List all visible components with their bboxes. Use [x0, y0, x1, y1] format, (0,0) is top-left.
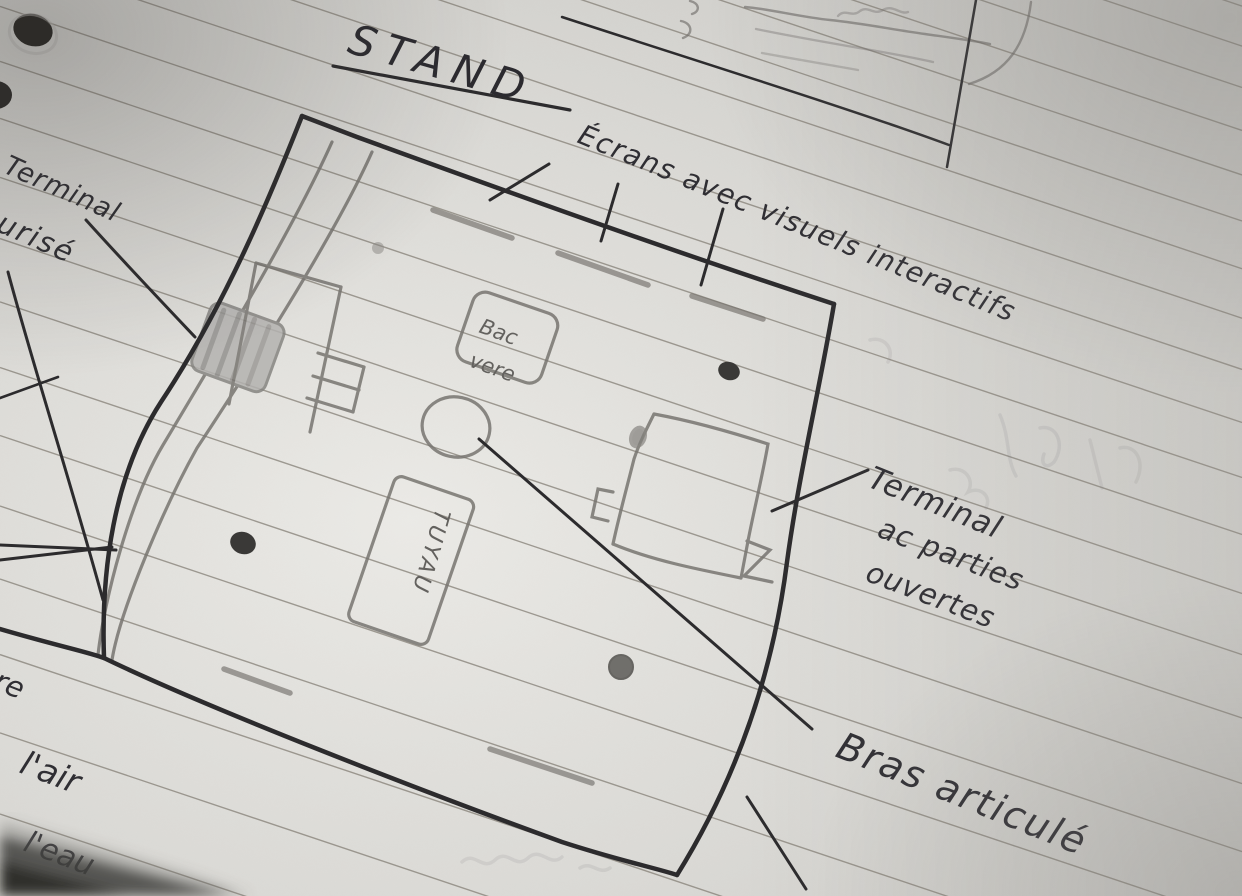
shadow-right-band	[0, 0, 1242, 896]
notebook-photo: STAND Écrans avec visuels interactifs Te…	[0, 0, 1242, 896]
